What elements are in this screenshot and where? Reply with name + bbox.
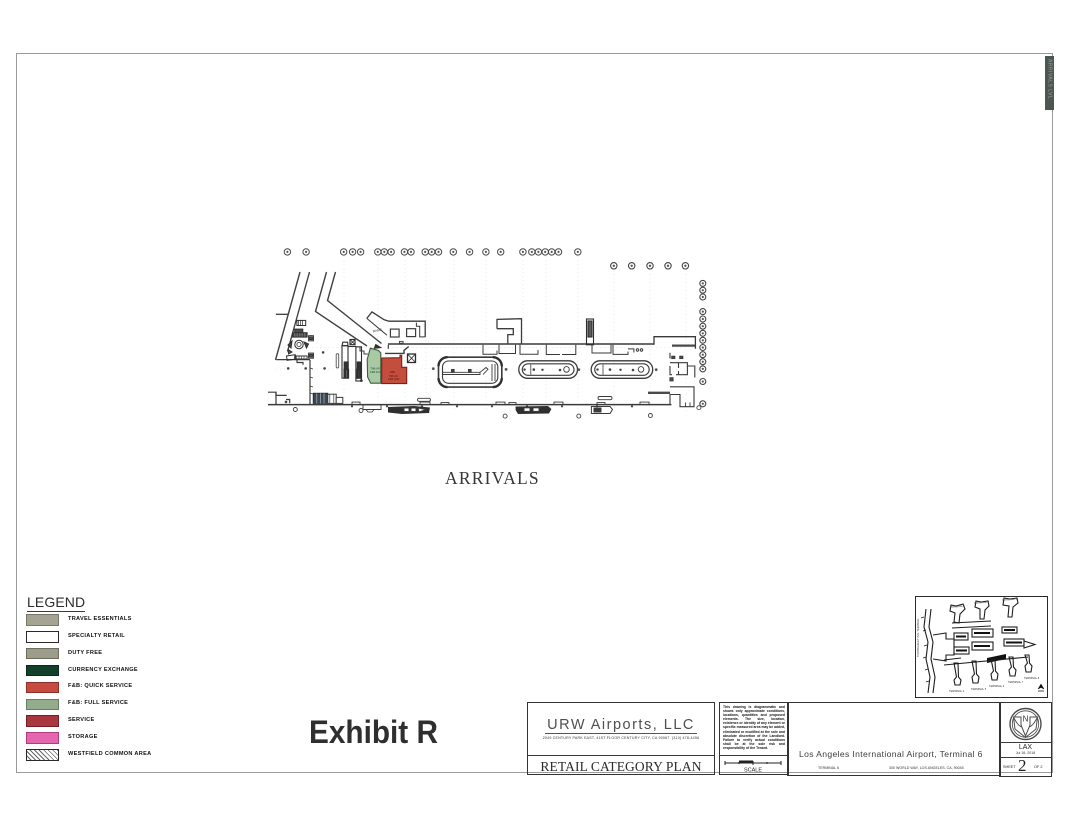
svg-text:TERMINAL 8: TERMINAL 8 — [1024, 676, 1040, 680]
svg-text:TERMINAL 1: TERMINAL 1 — [950, 604, 966, 609]
svg-text:TOM BRADLEY INTL TERMINAL: TOM BRADLEY INTL TERMINAL — [916, 618, 920, 657]
svg-text:SCALE: SCALE — [744, 768, 762, 774]
svg-text:TERMINAL 5: TERMINAL 5 — [971, 687, 987, 691]
svg-text:TERMINAL 7: TERMINAL 7 — [1008, 680, 1024, 684]
svg-text:TERMINAL 2: TERMINAL 2 — [974, 600, 990, 605]
svg-text:F&B FULL: F&B FULL — [370, 370, 383, 374]
svg-text:F&B QSR: F&B QSR — [388, 377, 400, 381]
svg-text:RAMP: RAMP — [372, 328, 382, 334]
svg-text:N: N — [1023, 715, 1029, 724]
svg-text:TERMINAL 4: TERMINAL 4 — [949, 689, 965, 693]
svg-text:TERMINAL 6: TERMINAL 6 — [989, 684, 1005, 688]
